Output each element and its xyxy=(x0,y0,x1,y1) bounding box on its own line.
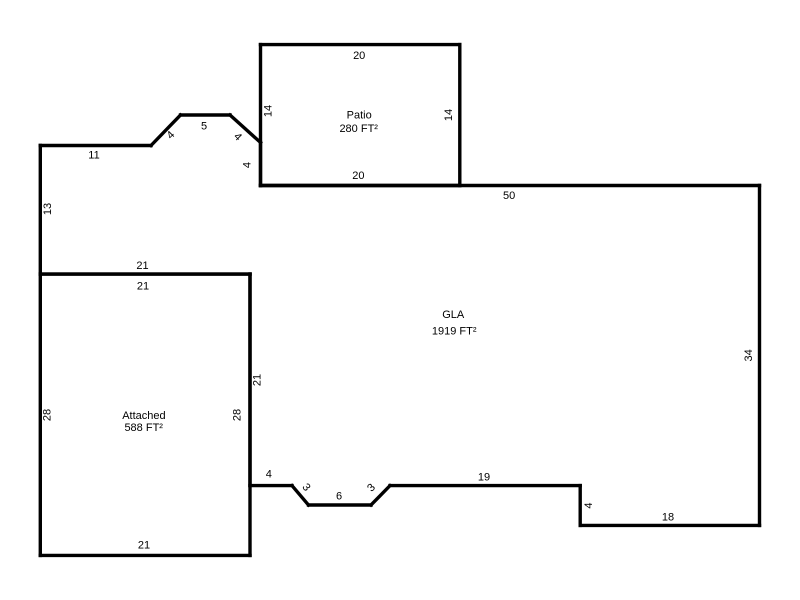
svg-text:4: 4 xyxy=(266,469,272,481)
svg-text:14: 14 xyxy=(263,105,275,117)
svg-text:50: 50 xyxy=(503,190,515,202)
svg-text:4: 4 xyxy=(242,162,254,168)
svg-text:19: 19 xyxy=(478,471,490,483)
svg-text:588 FT²: 588 FT² xyxy=(124,422,163,434)
svg-text:4: 4 xyxy=(583,502,595,508)
svg-text:14: 14 xyxy=(443,109,455,121)
svg-text:280 FT²: 280 FT² xyxy=(339,123,378,135)
svg-text:21: 21 xyxy=(138,539,150,551)
svg-text:6: 6 xyxy=(336,490,342,502)
svg-text:20: 20 xyxy=(353,50,365,62)
svg-text:13: 13 xyxy=(42,203,54,215)
svg-text:34: 34 xyxy=(743,349,755,361)
svg-text:11: 11 xyxy=(88,150,99,162)
svg-text:21: 21 xyxy=(252,374,264,386)
svg-text:18: 18 xyxy=(662,512,674,524)
svg-text:GLA: GLA xyxy=(442,309,465,321)
svg-text:5: 5 xyxy=(201,120,207,132)
svg-text:21: 21 xyxy=(136,260,148,272)
svg-text:Attached: Attached xyxy=(122,410,165,422)
svg-text:20: 20 xyxy=(352,170,364,182)
svg-text:21: 21 xyxy=(137,281,149,293)
svg-text:28: 28 xyxy=(42,409,54,421)
svg-text:Patio: Patio xyxy=(347,109,372,121)
svg-text:28: 28 xyxy=(232,409,244,421)
svg-text:1919 FT²: 1919 FT² xyxy=(432,325,477,337)
